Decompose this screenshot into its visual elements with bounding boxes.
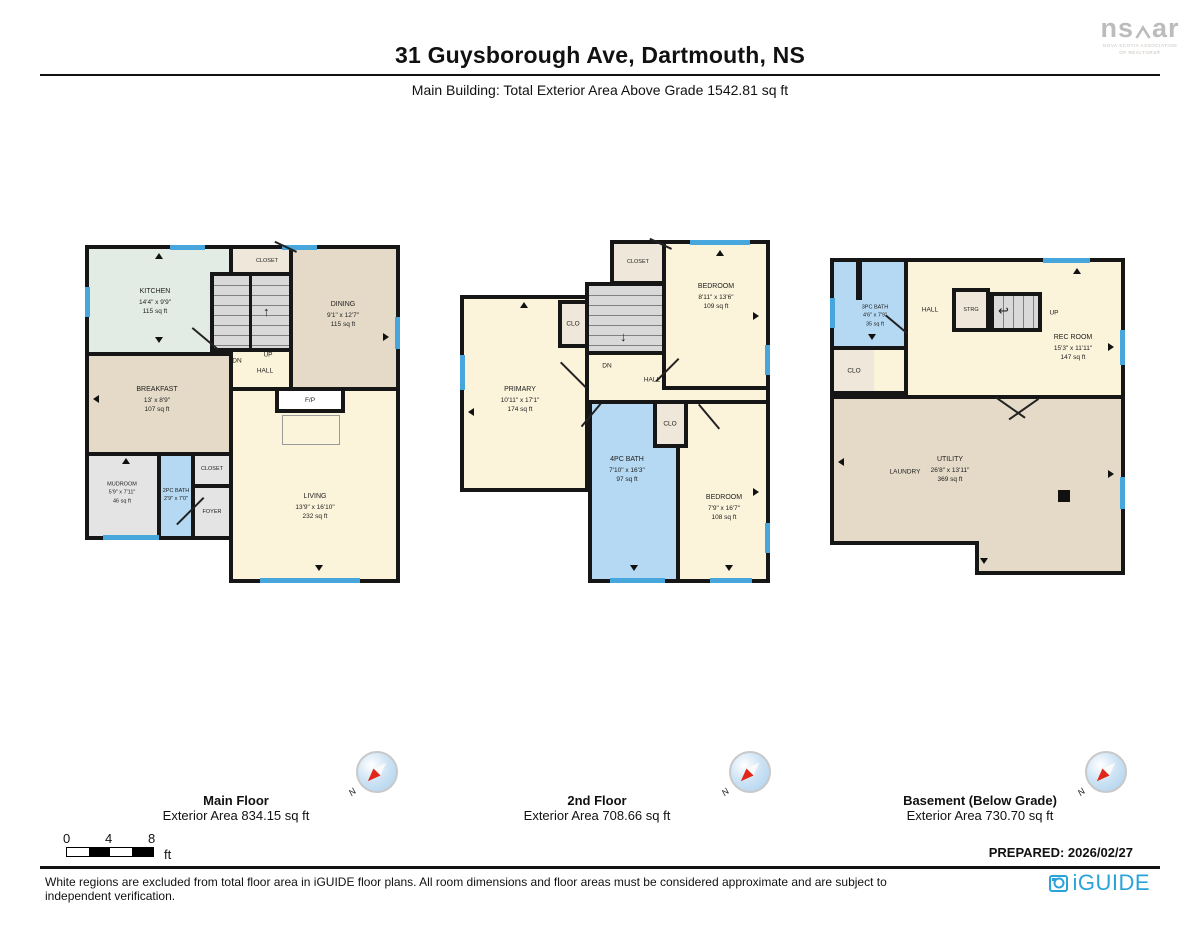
- fireplace-label: F/P: [279, 391, 341, 409]
- room-label-closet-top: CLOSET: [256, 257, 278, 265]
- room-label-3pc-bath: 3PC BATH 4'6" x 7'9" 35 sq ft: [862, 304, 889, 329]
- page-title: 31 Guysborough Ave, Dartmouth, NS: [0, 42, 1200, 69]
- compass-north-label: N: [347, 786, 358, 798]
- room-label-kitchen: KITCHEN 14'4" x 9'9" 115 sq ft: [139, 287, 171, 317]
- support-post: [1058, 490, 1070, 502]
- camera-marker: [630, 565, 638, 571]
- camera-marker: [716, 250, 724, 256]
- room-label-breakfast: BREAKFAST 13' x 8'9" 107 sq ft: [136, 385, 177, 415]
- room-label-mudroom: MUDROOM 5'9" x 7'11" 46 sq ft: [107, 481, 137, 506]
- prepared-date: PREPARED: 2026/02/27: [989, 845, 1133, 860]
- nsar-logo-left: ns: [1100, 16, 1134, 40]
- room-label-bedroom-1: BEDROOM 8'11" x 13'6" 109 sq ft: [698, 282, 734, 312]
- window: [170, 245, 205, 250]
- camera-marker: [980, 558, 988, 564]
- scale-tick-4: 4: [105, 831, 112, 846]
- camera-marker: [868, 334, 876, 340]
- label-clo-2: CLO: [663, 421, 676, 428]
- bath-wall-stub: [856, 258, 862, 300]
- room-label-bedroom-2: BEDROOM 7'9" x 16'7" 108 sq ft: [706, 493, 742, 523]
- camera-marker: [838, 458, 844, 466]
- window: [690, 240, 750, 245]
- window: [1043, 258, 1090, 263]
- camera-marker: [122, 458, 130, 464]
- basement-plan: ↩ 3PC BATH 4'6" x 7'9" 35 sq ft HALL STR…: [830, 258, 1125, 575]
- floorplan-page: 31 Guysborough Ave, Dartmouth, NS Main B…: [0, 0, 1200, 927]
- caption-main-floor: Main Floor Exterior Area 834.15 sq ft: [163, 793, 310, 823]
- compass-north-label: N: [720, 786, 731, 798]
- window: [395, 317, 400, 349]
- camera-marker: [315, 565, 323, 571]
- room-label-utility: UTILITY 26'8" x 13'11" 369 sq ft: [931, 455, 970, 485]
- window: [610, 578, 665, 583]
- stairs-down-arrow: ↓: [620, 330, 627, 343]
- camera-marker: [520, 302, 528, 308]
- room-label-closet-foyer: CLOSET: [201, 465, 223, 473]
- camera-marker: [1073, 268, 1081, 274]
- scale-tick-0: 0: [63, 831, 70, 846]
- label-hall-bsmt: HALL: [922, 307, 938, 314]
- room-label-2pc-bath: 2PC BATH 2'9" x 7'0": [163, 487, 190, 504]
- compass-north-label: N: [1076, 786, 1087, 798]
- compass-needle: [1093, 759, 1118, 784]
- room-label-rec: REC ROOM 15'3" x 11'11" 147 sq ft: [1054, 333, 1093, 363]
- stairs-2nd: [585, 282, 666, 355]
- window: [765, 523, 770, 553]
- house-roof-icon: [1135, 24, 1151, 40]
- camera-marker: [155, 337, 163, 343]
- compass-rose-main: N: [356, 751, 398, 793]
- window: [260, 578, 360, 583]
- room-label-dining: DINING 9'1" x 12'7" 115 sq ft: [327, 300, 359, 330]
- nsar-tagline-2: OF REALTORS®: [1095, 50, 1185, 57]
- compass-rose-basement: N: [1085, 751, 1127, 793]
- compass-rose-second: N: [729, 751, 771, 793]
- room-label-4pc-bath: 4PC BATH 7'10" x 16'3" 97 sq ft: [609, 455, 645, 485]
- label-hall-2nd: HALL: [644, 377, 660, 384]
- window: [830, 298, 835, 328]
- nsar-logo-right: ar: [1152, 16, 1180, 40]
- room-label-closet-2nd: CLOSET: [627, 258, 649, 266]
- camera-marker: [468, 408, 474, 416]
- iguide-logo: iGUIDE: [1049, 870, 1150, 896]
- page-subtitle: Main Building: Total Exterior Area Above…: [0, 82, 1200, 98]
- label-laundry: LAUNDRY: [890, 469, 921, 476]
- label-hall: HALL: [257, 368, 273, 375]
- camera-marker: [753, 312, 759, 320]
- label-dn: DN: [232, 358, 241, 365]
- camera-marker: [93, 395, 99, 403]
- camera-marker: [1108, 470, 1114, 478]
- scale-bar: 0 4 8 ft: [66, 831, 154, 857]
- compass-needle: [364, 759, 389, 784]
- camera-icon: [1049, 875, 1068, 892]
- disclaimer-text: White regions are excluded from total fl…: [45, 875, 945, 903]
- room-label-foyer: FOYER: [203, 508, 222, 516]
- window: [85, 287, 90, 317]
- title-divider: [40, 74, 1160, 76]
- window: [103, 535, 159, 540]
- stairs-up-arrow-bsmt: ↩: [998, 304, 1009, 317]
- window: [765, 345, 770, 375]
- label-clo-1: CLO: [566, 321, 579, 328]
- label-strg: STRG: [963, 307, 978, 313]
- camera-marker: [155, 253, 163, 259]
- camera-marker: [1108, 343, 1114, 351]
- label-up: UP: [263, 352, 272, 359]
- room-utility: [830, 395, 1125, 545]
- footer-divider: [40, 866, 1160, 869]
- stair-divider: [249, 272, 252, 352]
- room-label-living: LIVING 13'9" x 16'10" 232 sq ft: [295, 492, 334, 522]
- window: [1120, 477, 1125, 509]
- window: [710, 578, 752, 583]
- scale-bar-segments: [66, 847, 154, 857]
- second-floor-plan: ↓ CLOSET BEDROOM 8'11" x 13'6" 109 sq ft: [460, 240, 770, 583]
- caption-basement: Basement (Below Grade) Exterior Area 730…: [903, 793, 1057, 823]
- nsar-logo: ns ar NOVA SCOTIA ASSOCIATION OF REALTOR…: [1095, 16, 1185, 57]
- main-floor-plan: ↑ F/P KITCHEN 14'4" x 9'9" 115 sq ft: [85, 245, 400, 583]
- fireplace-hearth: [282, 415, 340, 445]
- hall-patch: [874, 346, 908, 395]
- label-up-bsmt: UP: [1049, 310, 1058, 317]
- stairs-up-arrow: ↑: [263, 305, 270, 318]
- camera-marker: [753, 488, 759, 496]
- window: [1120, 330, 1125, 365]
- fireplace: F/P: [275, 387, 345, 413]
- room-utility-ext: [975, 541, 1125, 575]
- compass-needle: [737, 759, 762, 784]
- room-label-primary: PRIMARY 10'11" x 17'1" 174 sq ft: [501, 385, 540, 415]
- window: [460, 355, 465, 390]
- label-dn-2nd: DN: [602, 363, 611, 370]
- label-clo-bsmt: CLO: [847, 368, 860, 375]
- caption-2nd-floor: 2nd Floor Exterior Area 708.66 sq ft: [524, 793, 671, 823]
- scale-unit-label: ft: [164, 847, 171, 862]
- iguide-logo-text: iGUIDE: [1072, 870, 1150, 896]
- camera-marker: [725, 565, 733, 571]
- camera-marker: [383, 333, 389, 341]
- scale-tick-8: 8: [148, 831, 155, 846]
